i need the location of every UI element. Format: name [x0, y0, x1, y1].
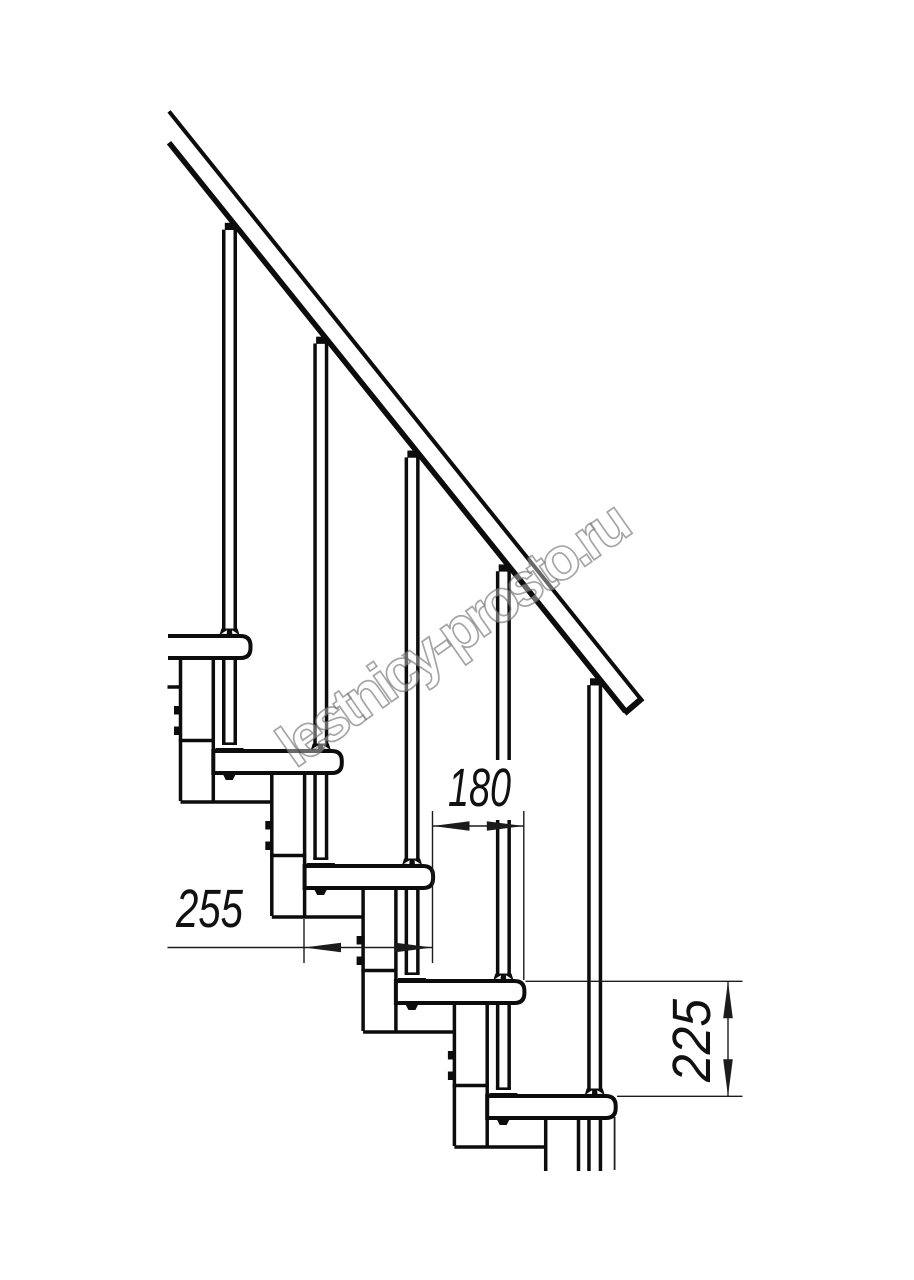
svg-text:225: 225 [662, 998, 722, 1083]
svg-text:180: 180 [448, 758, 511, 818]
svg-text:255: 255 [175, 879, 243, 939]
